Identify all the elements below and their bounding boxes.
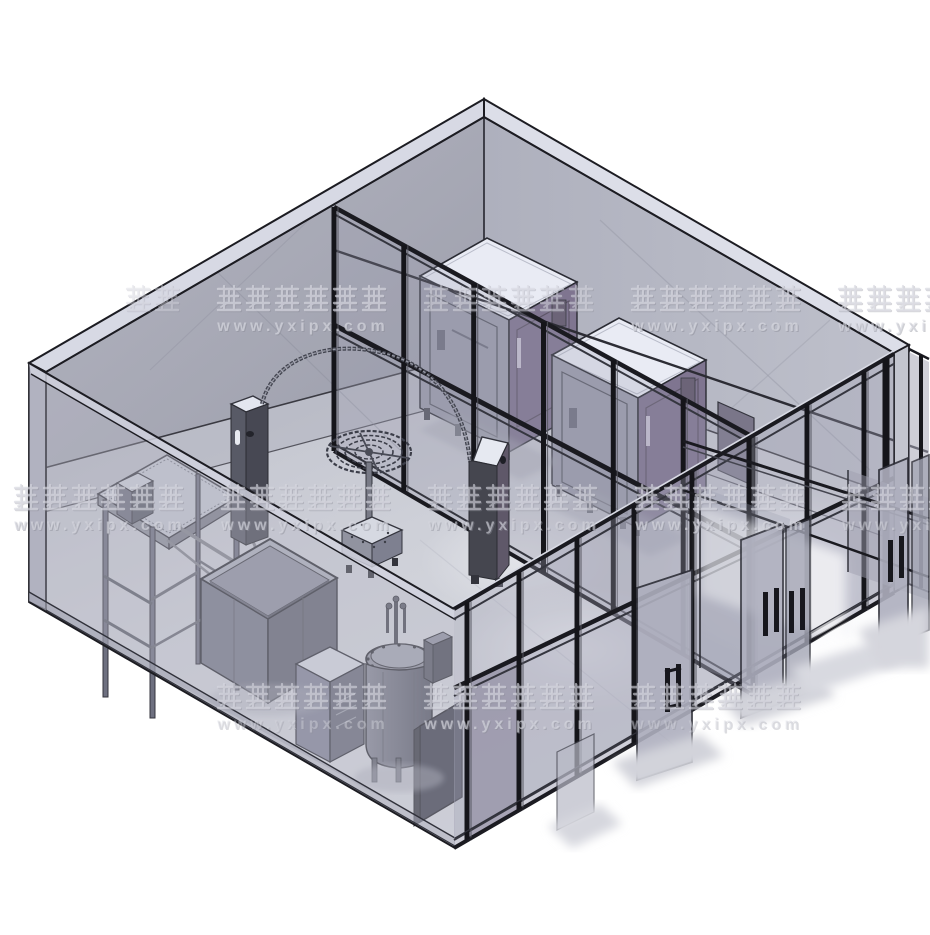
svg-text:www.yxipx.com: www.yxipx.com [630, 716, 802, 733]
svg-text:www.yxipx.com: www.yxipx.com [216, 716, 388, 733]
svg-text:www.yxipx.com: www.yxipx.com [427, 517, 599, 534]
svg-text:www.yxipx.com: www.yxipx.com [13, 517, 185, 534]
svg-text:www.yxipx.com: www.yxipx.com [216, 318, 388, 335]
svg-text:www.yxipx.com: www.yxipx.com [837, 318, 930, 335]
svg-text:www.yxipx.com: www.yxipx.com [423, 716, 595, 733]
svg-text:www.yxipx.com: www.yxipx.com [634, 517, 806, 534]
svg-text:www.yxipx.com: www.yxipx.com [841, 517, 930, 534]
svg-text:www.yxipx.com: www.yxipx.com [630, 318, 802, 335]
svg-text:www.yxipx.com: www.yxipx.com [220, 517, 392, 534]
